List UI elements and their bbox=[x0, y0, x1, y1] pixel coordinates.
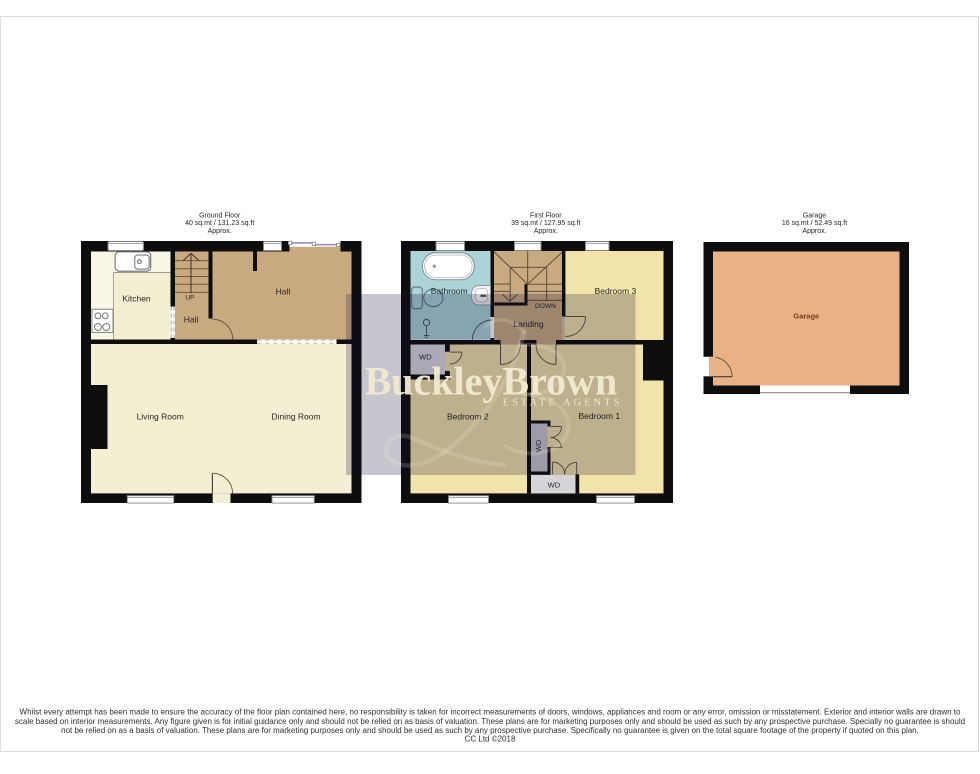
svg-text:WD: WD bbox=[548, 480, 561, 489]
svg-text:Approx.: Approx. bbox=[208, 228, 232, 235]
svg-text:Garage: Garage bbox=[803, 212, 826, 219]
svg-text:Dining Room: Dining Room bbox=[271, 411, 320, 421]
svg-text:UP: UP bbox=[185, 294, 195, 301]
svg-text:Ground Floor: Ground Floor bbox=[199, 212, 241, 219]
svg-text:Approx.: Approx. bbox=[802, 228, 826, 235]
svg-text:CC Ltd ©2018: CC Ltd ©2018 bbox=[465, 735, 516, 744]
svg-text:scale based on interior measur: scale based on interior measurements. An… bbox=[15, 717, 965, 726]
svg-text:Hall: Hall bbox=[184, 315, 199, 325]
svg-text:40 sq.mt / 131.23 sq.ft: 40 sq.mt / 131.23 sq.ft bbox=[185, 220, 254, 227]
svg-text:First Floor: First Floor bbox=[530, 212, 562, 219]
svg-text:Whilst every attempt has been: Whilst every attempt has been made to en… bbox=[20, 707, 961, 716]
svg-text:39 sq.mt / 127.95 sq.ft: 39 sq.mt / 127.95 sq.ft bbox=[511, 220, 580, 227]
svg-text:ESTATE AGENTS: ESTATE AGENTS bbox=[503, 398, 623, 409]
svg-text:Garage: Garage bbox=[793, 312, 819, 321]
svg-text:Approx.: Approx. bbox=[534, 228, 558, 235]
svg-text:Hall: Hall bbox=[276, 286, 291, 296]
svg-text:Kitchen: Kitchen bbox=[122, 293, 151, 303]
svg-text:16 sq.mt / 52.49 sq.ft: 16 sq.mt / 52.49 sq.ft bbox=[782, 220, 847, 227]
svg-text:Living Room: Living Room bbox=[137, 411, 184, 421]
